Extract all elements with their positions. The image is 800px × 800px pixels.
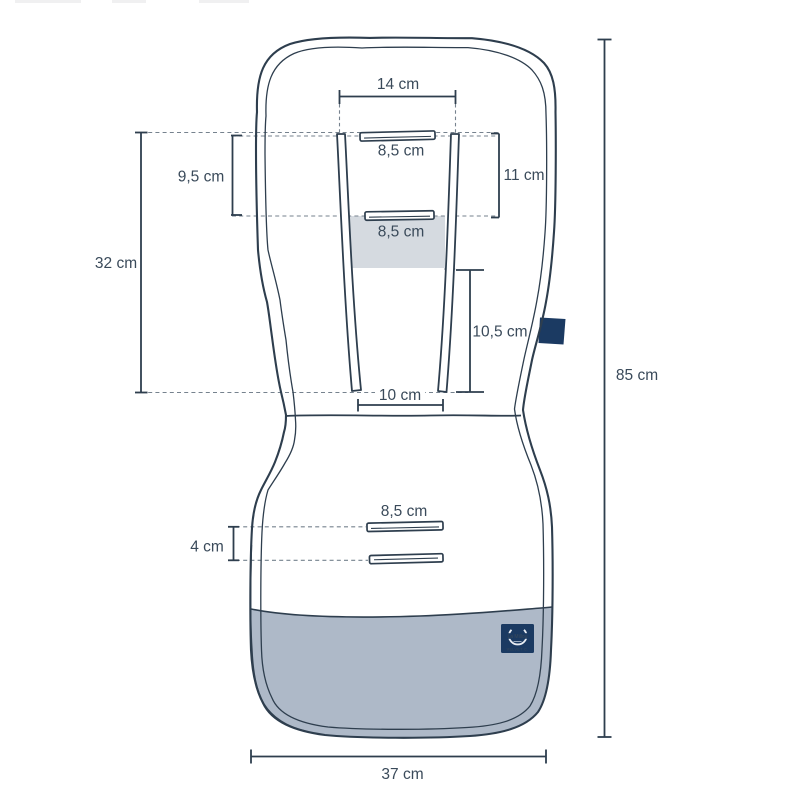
svg-text:8,5 cm: 8,5 cm <box>378 143 425 160</box>
svg-text:14 cm: 14 cm <box>377 76 419 93</box>
svg-text:8,5 cm: 8,5 cm <box>381 503 428 520</box>
svg-text:8,5 cm: 8,5 cm <box>378 224 425 241</box>
svg-text:9,5 cm: 9,5 cm <box>178 169 225 186</box>
svg-text:VELVET C.: VELVET C. <box>507 648 529 652</box>
svg-text:La Millou: La Millou <box>507 634 527 640</box>
svg-text:10,5 cm: 10,5 cm <box>472 324 527 341</box>
svg-text:85 cm: 85 cm <box>616 367 658 384</box>
svg-text:11 cm: 11 cm <box>503 167 544 184</box>
svg-text:10 cm: 10 cm <box>379 387 421 404</box>
svg-text:37 cm: 37 cm <box>381 766 423 783</box>
svg-text:4 cm: 4 cm <box>190 539 224 556</box>
svg-text:32 cm: 32 cm <box>95 255 137 272</box>
